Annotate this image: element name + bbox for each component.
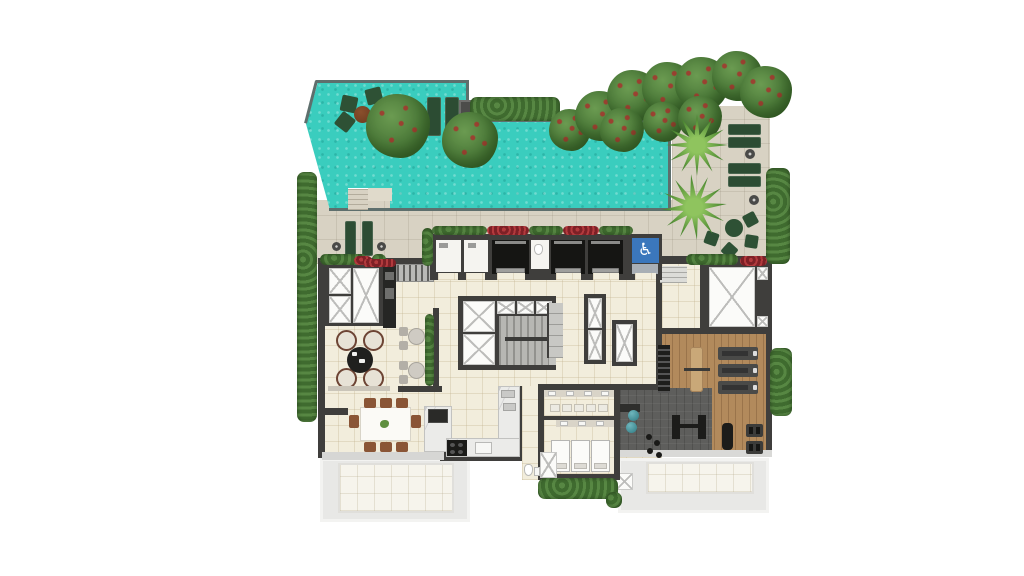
locker bbox=[586, 404, 596, 412]
hedge bbox=[606, 492, 622, 508]
elevator-top-rail bbox=[495, 241, 526, 244]
hedge bbox=[770, 348, 792, 416]
stepper-pedal bbox=[756, 444, 760, 451]
bar-chair bbox=[399, 361, 408, 370]
planter-flowers bbox=[740, 256, 767, 266]
basin bbox=[584, 391, 592, 396]
kettlebell bbox=[654, 440, 660, 446]
bbq-item bbox=[385, 272, 394, 280]
press-station-bar bbox=[672, 424, 706, 428]
shaft-xbox bbox=[329, 268, 351, 294]
tree bbox=[600, 108, 644, 152]
dining-chair bbox=[364, 442, 376, 452]
shaft-xbox bbox=[353, 268, 379, 323]
dining-chair bbox=[396, 442, 408, 452]
counter-item bbox=[503, 403, 516, 411]
shaft-xbox bbox=[588, 298, 602, 328]
doorway bbox=[593, 273, 619, 280]
dumbbell-rack bbox=[658, 345, 670, 393]
pool-edge bbox=[329, 208, 671, 211]
stepper-pedal bbox=[749, 444, 753, 451]
deck-lounger bbox=[345, 221, 356, 256]
stove-burner bbox=[458, 450, 463, 454]
tree bbox=[366, 94, 430, 158]
bar-table bbox=[408, 362, 425, 379]
basin bbox=[596, 421, 604, 426]
deck-side-table bbox=[332, 242, 341, 251]
grill-counter bbox=[396, 264, 434, 282]
kettlebell bbox=[656, 452, 662, 458]
shaft-xbox bbox=[463, 301, 495, 332]
floor-plan-canvas: ♿ bbox=[0, 0, 1024, 576]
basin bbox=[560, 421, 568, 426]
bar-chair bbox=[399, 375, 408, 384]
accessible-toilet bbox=[524, 464, 533, 476]
garden-side-table bbox=[749, 195, 759, 205]
doorway bbox=[635, 273, 656, 280]
pantry-shelves bbox=[547, 303, 563, 358]
planter-hedge bbox=[686, 254, 738, 265]
wall bbox=[318, 258, 325, 458]
treadmill-belt bbox=[722, 385, 748, 390]
planter-hedge bbox=[529, 226, 563, 235]
shaft-xbox bbox=[540, 452, 557, 478]
lounge-table-item bbox=[352, 352, 357, 356]
hedge bbox=[297, 172, 317, 422]
elevator-top-rail bbox=[591, 241, 620, 244]
bar-table bbox=[408, 328, 425, 345]
shaft-xbox bbox=[463, 334, 495, 365]
stair-handrail bbox=[505, 337, 551, 341]
garden-seat bbox=[744, 234, 759, 249]
kitchen-sink bbox=[475, 442, 492, 454]
shower-bench bbox=[594, 463, 607, 469]
dining-chair bbox=[364, 398, 376, 408]
lounge-shelf bbox=[328, 386, 390, 391]
dining-chair bbox=[349, 415, 359, 428]
doorway bbox=[466, 273, 485, 280]
pool-shallow-step bbox=[368, 188, 392, 201]
doorway bbox=[438, 273, 458, 280]
planter-flowers bbox=[563, 226, 599, 235]
pool-steps bbox=[348, 189, 368, 210]
wc-toilet bbox=[534, 244, 543, 255]
basin bbox=[601, 391, 609, 396]
stove-burner bbox=[450, 443, 455, 447]
stepper-pedal bbox=[756, 427, 760, 434]
garden-lounger bbox=[728, 124, 761, 135]
lounge-table-item bbox=[359, 359, 365, 363]
wall bbox=[398, 386, 442, 392]
treadmill-console bbox=[753, 385, 757, 390]
planter-strip bbox=[425, 314, 434, 386]
spin-bike bbox=[722, 423, 733, 450]
dining-chair bbox=[396, 398, 408, 408]
basin bbox=[566, 391, 574, 396]
accessibility-sign: ♿ bbox=[632, 238, 659, 263]
dining-chair bbox=[411, 415, 421, 428]
garden-lounger bbox=[728, 137, 761, 148]
shower-bench bbox=[574, 463, 587, 469]
doorway bbox=[556, 273, 581, 280]
locker bbox=[562, 404, 572, 412]
dining-chair bbox=[380, 398, 392, 408]
treadmill-belt bbox=[722, 368, 748, 373]
shaft-xbox bbox=[616, 324, 633, 362]
coffee-machine bbox=[428, 409, 448, 423]
barbell bbox=[684, 368, 710, 371]
shaft-xbox bbox=[757, 267, 768, 280]
wheelchair-accessible-icon: ♿ bbox=[638, 242, 653, 259]
locker bbox=[550, 404, 560, 412]
stove-burner bbox=[450, 450, 455, 454]
garden-lounger bbox=[728, 176, 761, 187]
dining-chair bbox=[380, 442, 392, 452]
planter-hedge bbox=[599, 226, 633, 235]
stove-burner bbox=[458, 443, 463, 447]
hedge bbox=[422, 228, 433, 266]
pool-edge bbox=[316, 80, 469, 83]
tree bbox=[740, 66, 792, 118]
hedge bbox=[766, 168, 790, 264]
stability-ball bbox=[626, 422, 637, 433]
left-terrace-tiles bbox=[338, 463, 454, 513]
counter-item bbox=[501, 390, 515, 398]
bbq-item bbox=[385, 288, 394, 299]
stepper-pedal bbox=[749, 427, 753, 434]
planter-flowers bbox=[363, 259, 396, 267]
shaft-xbox bbox=[497, 301, 515, 314]
bar-chair bbox=[399, 341, 408, 350]
treadmill-belt bbox=[722, 351, 748, 356]
wall bbox=[322, 408, 348, 415]
shaft-xbox bbox=[329, 296, 351, 323]
niche-fixture bbox=[468, 243, 476, 248]
niche-fixture bbox=[439, 243, 448, 248]
basin bbox=[548, 391, 556, 396]
garden-group-table bbox=[725, 219, 743, 237]
corridor-basin bbox=[534, 467, 540, 476]
shaft-xbox bbox=[588, 330, 602, 360]
kettlebell bbox=[647, 448, 653, 454]
shaft-xbox bbox=[517, 301, 534, 314]
locker bbox=[574, 404, 584, 412]
treadmill-console bbox=[753, 368, 757, 373]
planter-flowers bbox=[487, 226, 529, 235]
deck-lounger bbox=[362, 221, 373, 256]
tree bbox=[442, 112, 498, 168]
garden-side-table bbox=[745, 149, 755, 159]
garden-lounger bbox=[728, 163, 761, 174]
bar-chair bbox=[399, 327, 408, 336]
basin bbox=[578, 421, 586, 426]
stability-ball bbox=[628, 410, 639, 421]
right-terrace-tiles bbox=[646, 462, 754, 494]
elevator-top-rail bbox=[554, 241, 582, 244]
treadmill-console bbox=[753, 351, 757, 356]
shaft-xbox-large bbox=[709, 267, 755, 327]
doorway bbox=[497, 273, 525, 280]
tree bbox=[643, 102, 683, 142]
deck-side-table bbox=[377, 242, 386, 251]
parapet-wall bbox=[322, 452, 444, 460]
shaft-xbox bbox=[757, 316, 768, 327]
locker bbox=[598, 404, 608, 412]
garden-entry-steps bbox=[660, 266, 687, 283]
planter-hedge bbox=[432, 226, 487, 235]
kettlebell bbox=[646, 434, 652, 440]
